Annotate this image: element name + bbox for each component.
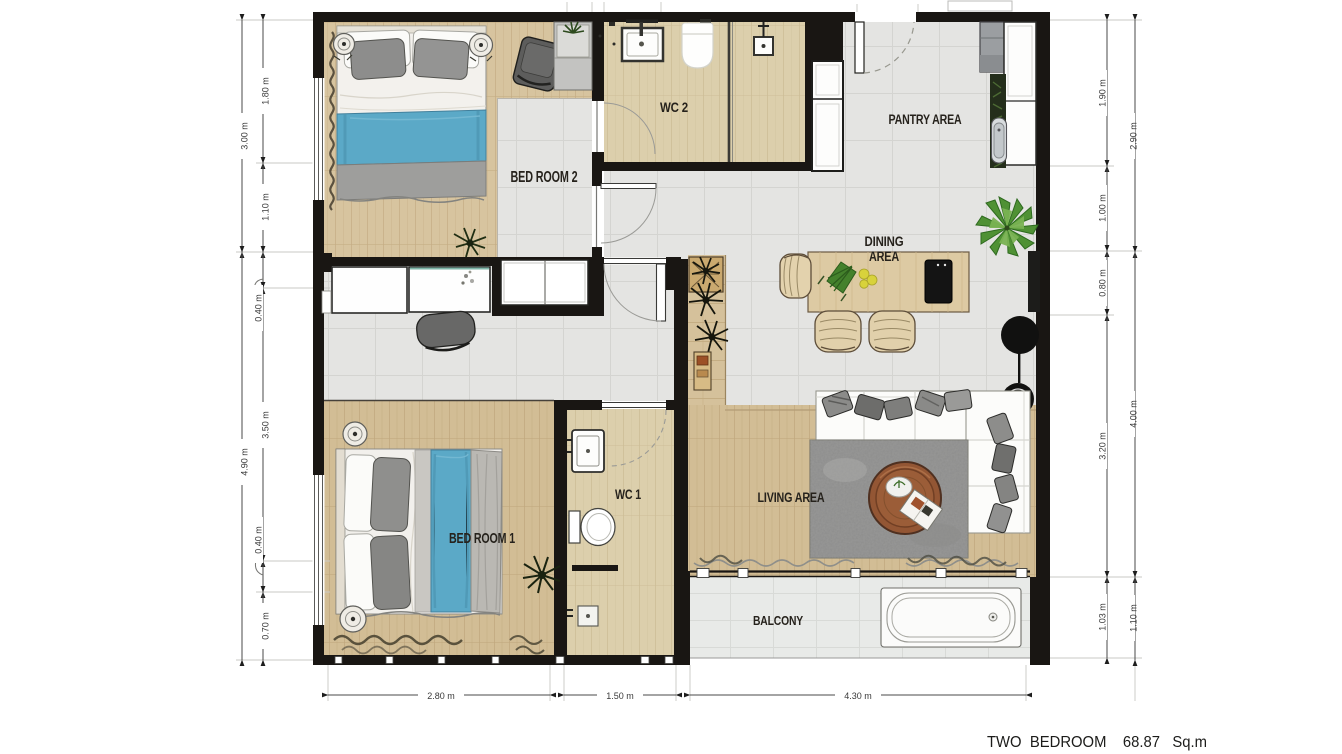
svg-text:0.80 m: 0.80 m: [1097, 269, 1107, 297]
svg-text:TWO BEDROOM 68.87 Sq.m: TWO BEDROOM 68.87 Sq.m: [987, 734, 1207, 751]
svg-text:1.10 m: 1.10 m: [1128, 604, 1138, 632]
svg-text:BED ROOM 1: BED ROOM 1: [449, 530, 515, 547]
svg-text:1.00 m: 1.00 m: [1097, 194, 1107, 222]
svg-text:1.50 m: 1.50 m: [606, 691, 634, 701]
svg-text:1.03 m: 1.03 m: [1097, 603, 1107, 631]
svg-text:WC 1: WC 1: [615, 487, 642, 502]
svg-text:2.80 m: 2.80 m: [427, 691, 455, 701]
svg-text:PANTRY AREA: PANTRY AREA: [889, 112, 962, 127]
svg-text:1.10 m: 1.10 m: [260, 193, 270, 221]
svg-text:3.00 m: 3.00 m: [239, 122, 249, 150]
svg-text:0.40 m: 0.40 m: [253, 294, 263, 322]
svg-text:2.90 m: 2.90 m: [1128, 122, 1138, 150]
svg-text:4.30 m: 4.30 m: [844, 691, 872, 701]
svg-text:0.70 m: 0.70 m: [260, 612, 270, 640]
svg-text:1.90 m: 1.90 m: [1097, 79, 1107, 107]
svg-text:BED ROOM 2: BED ROOM 2: [511, 169, 578, 186]
svg-text:AREA: AREA: [869, 249, 899, 264]
svg-text:WC 2: WC 2: [660, 100, 688, 115]
svg-text:0.40 m: 0.40 m: [253, 526, 263, 554]
svg-text:3.20 m: 3.20 m: [1097, 432, 1107, 460]
svg-text:4.90 m: 4.90 m: [239, 448, 249, 476]
svg-text:4.00 m: 4.00 m: [1128, 400, 1138, 428]
svg-text:BALCONY: BALCONY: [753, 614, 804, 628]
svg-text:1.80 m: 1.80 m: [260, 77, 270, 105]
svg-text:3.50 m: 3.50 m: [260, 411, 270, 439]
svg-text:DINING: DINING: [865, 234, 904, 249]
svg-text:LIVING AREA: LIVING AREA: [758, 490, 825, 505]
